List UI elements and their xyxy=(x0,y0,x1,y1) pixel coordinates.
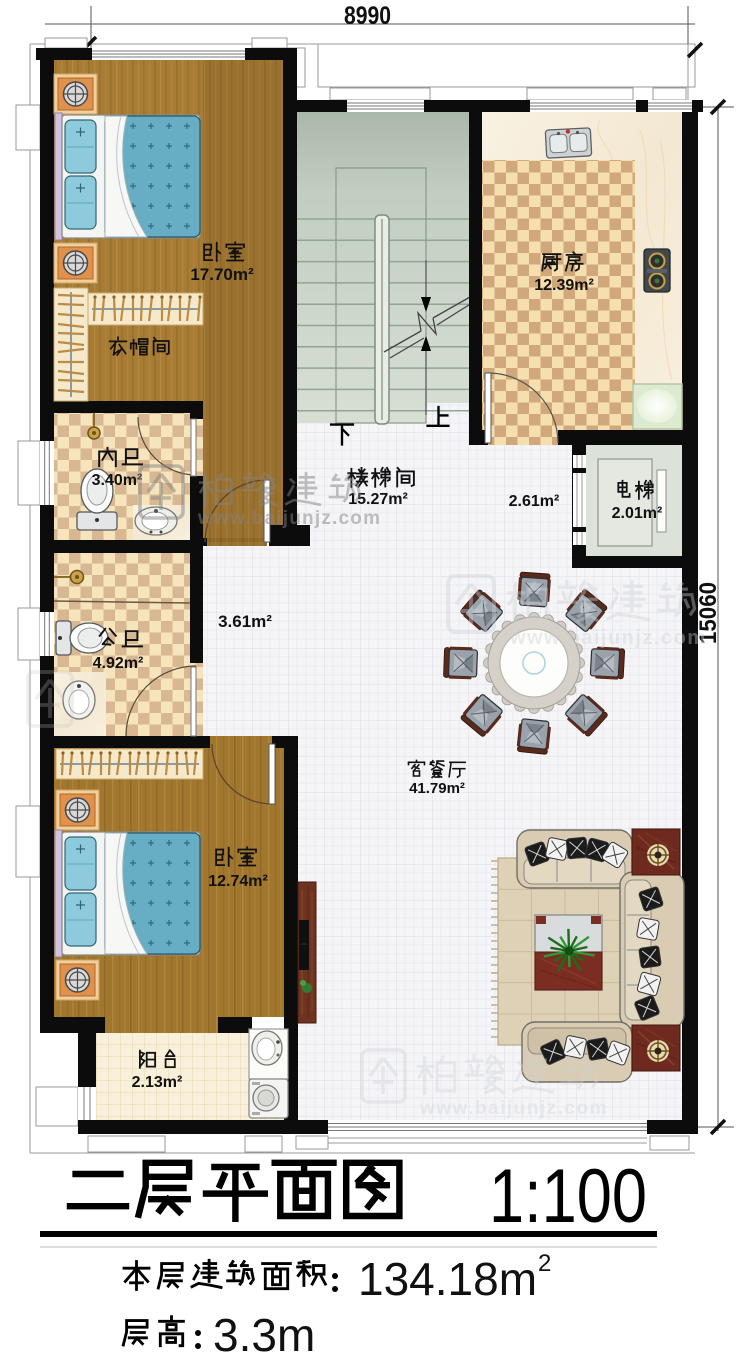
svg-text:12.74m²: 12.74m² xyxy=(208,873,268,890)
svg-text:1:100: 1:100 xyxy=(489,1154,647,1239)
svg-text:4.92m²: 4.92m² xyxy=(93,655,144,672)
svg-text:3.61m²: 3.61m² xyxy=(218,612,272,631)
svg-text:www.baijunjz.com: www.baijunjz.com xyxy=(419,1098,608,1119)
svg-text:3.3m: 3.3m xyxy=(213,1309,315,1361)
svg-text:12.39m²: 12.39m² xyxy=(534,277,594,294)
svg-text:3.40m²: 3.40m² xyxy=(92,472,143,489)
svg-text:17.70m²: 17.70m² xyxy=(190,265,254,284)
svg-text:2.13m²: 2.13m² xyxy=(132,1074,183,1091)
svg-text:2.61m²: 2.61m² xyxy=(509,493,560,510)
svg-text:134.18m: 134.18m xyxy=(358,1253,537,1305)
svg-text:2: 2 xyxy=(538,1250,551,1277)
svg-text:www.baijunjz.com: www.baijunjz.com xyxy=(509,627,707,649)
svg-text:41.79m²: 41.79m² xyxy=(409,780,465,797)
svg-text:www.baijunjz.com: www.baijunjz.com xyxy=(197,508,381,529)
svg-text:2.01m²: 2.01m² xyxy=(612,505,663,522)
svg-text:8990: 8990 xyxy=(344,2,391,30)
